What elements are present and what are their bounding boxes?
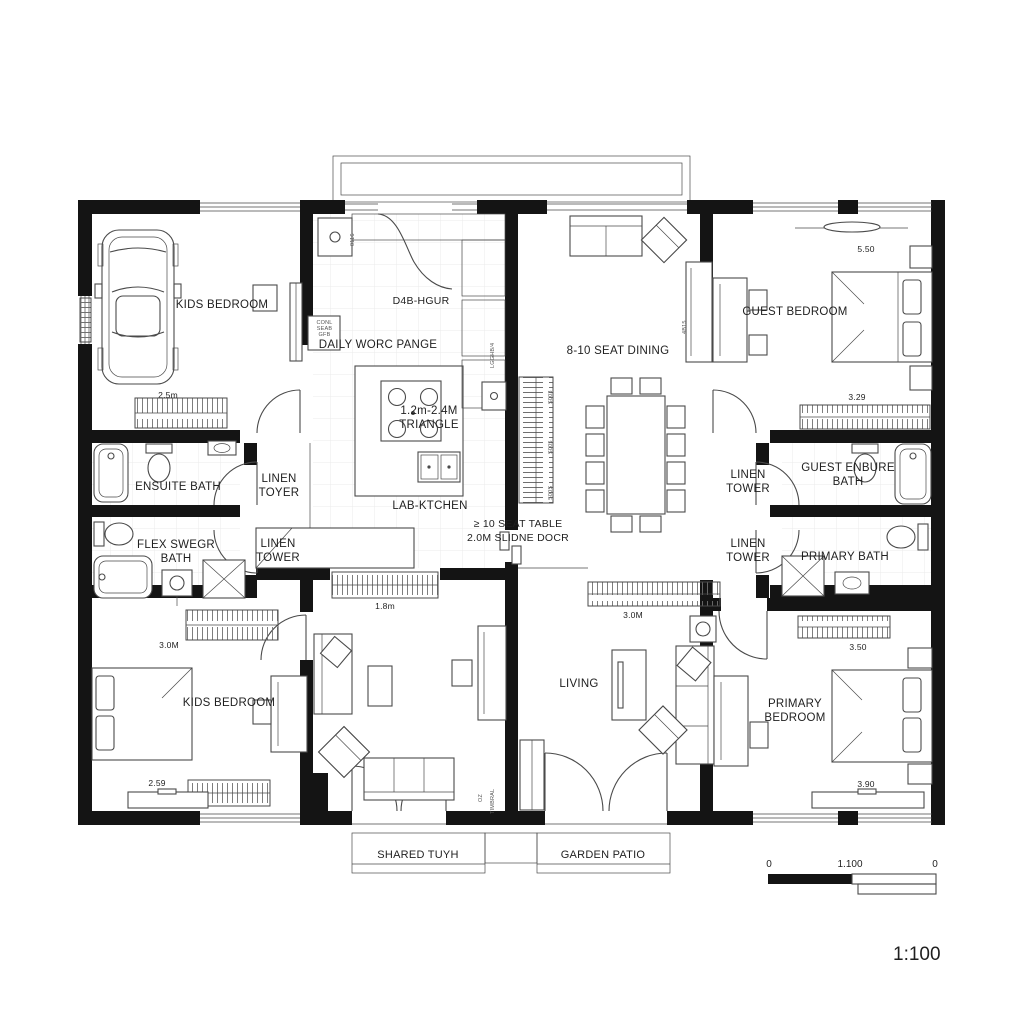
- room-label-ensuite-bath: ENSUITE BATH: [113, 480, 243, 494]
- room-label-primary-bath: PRIMARY BATH: [780, 550, 910, 564]
- micro-label-8: OZ: [478, 794, 484, 802]
- work-triangle-label: 1.2m-2.4M TRIANGLE: [373, 404, 485, 433]
- cabinet-note-label: CONL SEAB GFB: [310, 320, 339, 338]
- room-label-flex-bath: FLEX SWEGR BATH: [121, 538, 231, 567]
- room-label-linen-left-bottom: LINEN TOWER: [243, 537, 313, 566]
- micro-label-2: LGGHB/4: [490, 343, 496, 368]
- scale-bar: [768, 874, 936, 894]
- porch-label-garden-patio: GARDEN PATIO: [533, 849, 673, 863]
- middle-room-furniture: [314, 626, 506, 800]
- micro-label-3: S003: [548, 390, 554, 404]
- micro-label-6: 4B15: [682, 320, 688, 334]
- dim-kids-top-closet: 2.5m: [158, 390, 178, 400]
- dim-primary-closet: 3.50: [849, 642, 866, 652]
- room-label-living: LIVING: [539, 677, 619, 691]
- room-label-kids-bedroom-bottom: KIDS BEDROOM: [174, 696, 284, 710]
- room-label-linen-right-bottom: LINEN TOWER: [713, 537, 783, 566]
- daily-work-range-label: DAILY WORC PANGE: [318, 338, 438, 352]
- slide-door-note: 2.0M SLIDNE DOCR: [448, 532, 588, 545]
- dim-primary-width: 3.90: [857, 779, 874, 789]
- floor-plan-canvas: KIDS BEDROOM GUEST BEDROOM D4B-HGUR DAIL…: [0, 0, 1024, 1024]
- porch-label-shared: SHARED TUYH: [348, 849, 488, 863]
- room-label-kids-bedroom-top: KIDS BEDROOM: [167, 298, 277, 312]
- dim-kids-bottom-closet: 3.0M: [159, 640, 179, 650]
- scale-bar-label: 1.100: [837, 859, 862, 870]
- scale-ratio-text: 1:100: [893, 944, 941, 966]
- room-label-linen-right-top: LINEN TOWER: [713, 468, 783, 497]
- kids-bedroom-top-furniture: [253, 283, 302, 361]
- micro-label-7: TIMBRAL: [490, 789, 496, 814]
- room-label-kitchen: LAB-KTCHEN: [370, 499, 490, 513]
- primary-bedroom-furniture: [714, 648, 932, 808]
- room-label-guest-bedroom: GUEST BEDROOM: [740, 305, 850, 319]
- floor-plan-drawing: [0, 0, 1024, 1024]
- entry-porch: [333, 156, 690, 202]
- scale-zero-left: 0: [766, 859, 772, 870]
- scale-zero-right: 0: [932, 859, 938, 870]
- micro-label-5: S00S: [548, 486, 554, 500]
- dim-guest-closet: 3.29: [848, 392, 865, 402]
- dim-guest-top: 5.50: [857, 244, 874, 254]
- dim-living-closet: 3.0M: [623, 610, 643, 620]
- seat-table-note: ≥ 10 SEAT TABLE: [448, 518, 588, 531]
- room-label-dining: 8-10 SEAT DINING: [538, 344, 698, 358]
- kitchen-header-label: D4B-HGUR: [361, 295, 481, 308]
- dining-set: [570, 216, 712, 532]
- room-label-guest-bath: GUEST ENBURE BATH: [788, 461, 908, 490]
- dim-mid-left-window: 1.8m: [375, 601, 395, 611]
- room-label-linen-left-top: LINEN TOYER: [244, 472, 314, 501]
- living-room-furniture: [520, 616, 716, 810]
- micro-label-4: S005: [548, 440, 554, 454]
- dim-kids-bottom-width: 2.59: [148, 778, 165, 788]
- room-label-primary-bedroom: PRIMARY BEDROOM: [740, 697, 850, 726]
- micro-label-1: 0116: [350, 233, 356, 246]
